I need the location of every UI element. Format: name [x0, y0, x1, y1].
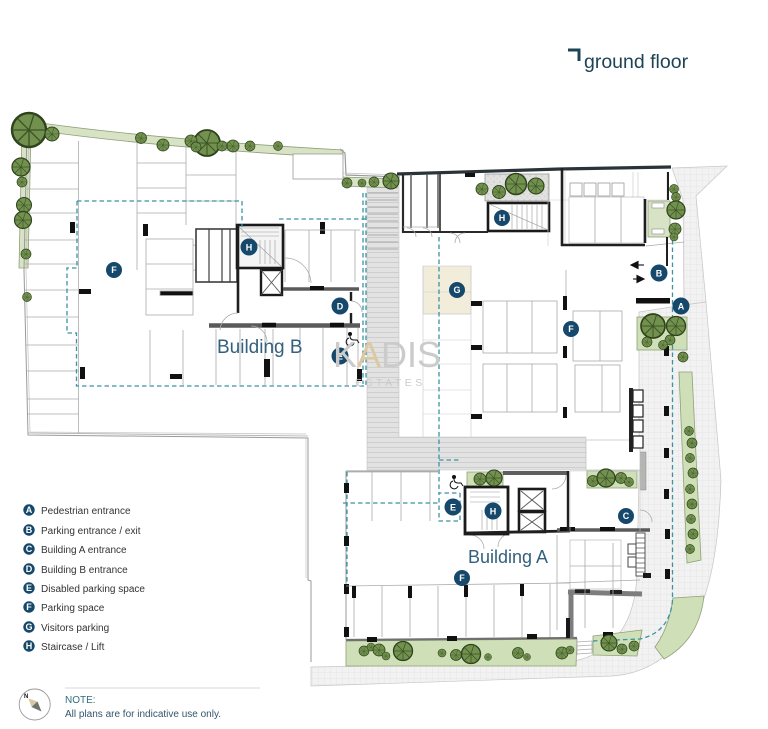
- svg-text:A: A: [26, 505, 33, 515]
- svg-text:A: A: [678, 301, 685, 311]
- svg-text:Pedestrian entrance: Pedestrian entrance: [41, 506, 131, 517]
- svg-text:D: D: [26, 564, 33, 574]
- svg-text:Building B: Building B: [217, 337, 303, 358]
- svg-text:DIS: DIS: [381, 334, 441, 375]
- svg-text:C: C: [26, 544, 33, 554]
- svg-text:G: G: [25, 622, 32, 632]
- svg-text:D: D: [337, 301, 344, 311]
- svg-text:Visitors parking: Visitors parking: [41, 623, 109, 634]
- svg-text:NOTE:: NOTE:: [65, 695, 96, 706]
- svg-text:Building B entrance: Building B entrance: [41, 565, 128, 576]
- svg-text:F: F: [26, 602, 32, 612]
- svg-text:B: B: [26, 525, 33, 535]
- svg-text:F: F: [111, 265, 117, 275]
- svg-text:H: H: [499, 213, 506, 223]
- svg-text:C: C: [623, 511, 630, 521]
- svg-text:G: G: [453, 285, 460, 295]
- svg-text:Building A entrance: Building A entrance: [41, 545, 127, 556]
- svg-text:E: E: [26, 583, 32, 593]
- svg-text:Parking space: Parking space: [41, 603, 105, 614]
- svg-text:N: N: [24, 694, 28, 700]
- svg-text:Building A: Building A: [468, 547, 548, 567]
- svg-text:H: H: [246, 242, 253, 252]
- svg-text:B: B: [656, 268, 663, 278]
- svg-text:K: K: [333, 334, 357, 375]
- svg-text:Staircase / Lift: Staircase / Lift: [41, 642, 105, 653]
- svg-text:All plans are for indicative u: All plans are for indicative use only.: [65, 709, 221, 720]
- svg-text:A: A: [357, 334, 381, 375]
- svg-text:ground floor: ground floor: [584, 51, 689, 73]
- svg-text:Disabled parking space: Disabled parking space: [41, 584, 145, 595]
- svg-text:H: H: [490, 506, 497, 516]
- svg-text:E: E: [450, 502, 456, 512]
- svg-text:F: F: [459, 573, 465, 583]
- svg-text:ESTATES: ESTATES: [355, 377, 426, 389]
- svg-text:H: H: [26, 641, 33, 651]
- svg-text:F: F: [568, 324, 574, 334]
- svg-text:Parking entrance / exit: Parking entrance / exit: [41, 526, 141, 537]
